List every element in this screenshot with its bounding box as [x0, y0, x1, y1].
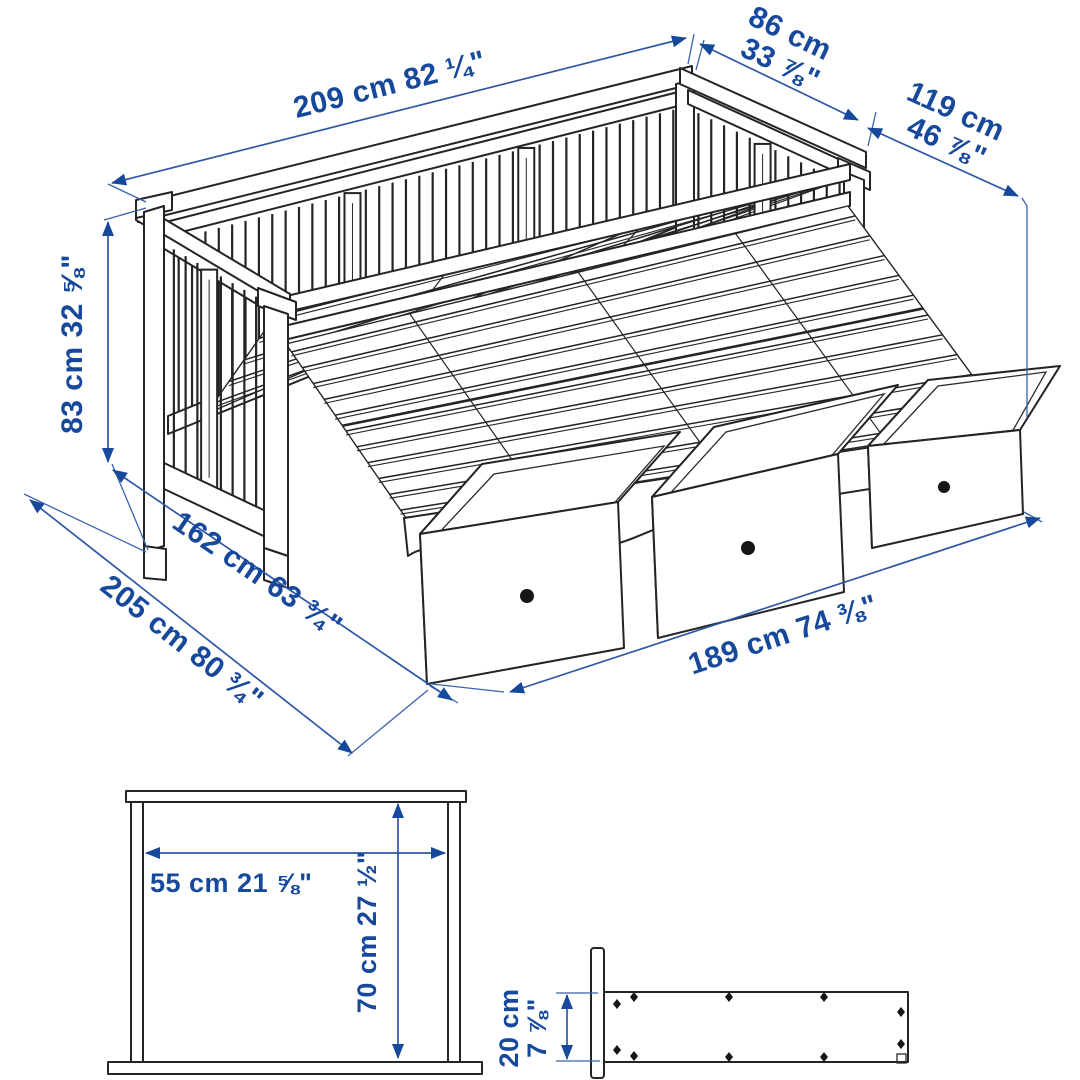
extension-line — [112, 464, 148, 550]
measurement-diagram-page: 209 cm 82 ¼" 86 cm 33 ⅞" 119 cm 46 ⅞" 83… — [0, 0, 1080, 1080]
frame-left-post — [131, 802, 143, 1062]
dim-bed-length: 209 cm 82 ¼" — [112, 38, 686, 183]
drawer-front-panel — [591, 948, 604, 1078]
daybed-diagram-svg: 209 cm 82 ¼" 86 cm 33 ⅞" 119 cm 46 ⅞" 83… — [0, 0, 1080, 1080]
dim-inner-height-label: 70 cm 27 ½" — [352, 851, 382, 1013]
back-left-foot — [144, 546, 166, 580]
drawer-3-knob — [938, 481, 950, 493]
frame-base-bar — [108, 1062, 482, 1074]
right-arm-rail-cap — [680, 68, 866, 168]
dim-total-depth-label: 205 cm 80 ¾" — [94, 569, 269, 717]
frame-right-post — [448, 802, 460, 1062]
extension-line — [348, 690, 428, 756]
dim-drawer-height-label-2: 7 ⅞" — [522, 998, 552, 1058]
drawer-body — [604, 992, 908, 1062]
dim-drawer-height: 20 cm 7 ⅞" — [494, 988, 600, 1067]
drawer-side-diagram: 20 cm 7 ⅞" — [494, 948, 908, 1078]
svg-text:86 cm 33 ⅞": 86 cm 33 ⅞" — [730, 0, 845, 100]
drawer-1-knob — [520, 589, 534, 603]
dim-inner-height: 70 cm 27 ½" — [352, 804, 398, 1058]
drawer-2-knob — [741, 541, 755, 555]
dim-height: 83 cm 32 ⅝" — [56, 222, 108, 462]
svg-text:119 cm 46 ⅞": 119 cm 46 ⅞" — [889, 75, 1018, 180]
daybed-drawing: 209 cm 82 ¼" 86 cm 33 ⅞" 119 cm 46 ⅞" 83… — [24, 0, 1060, 756]
frame-top-bar — [126, 791, 466, 802]
dim-extended-depth: 119 cm 46 ⅞" — [868, 75, 1018, 196]
dim-inner-width-label: 55 cm 21 ⅝" — [150, 868, 312, 898]
extension-line — [108, 184, 146, 202]
front-left-post — [264, 306, 288, 556]
extension-line — [688, 34, 694, 64]
dim-height-label: 83 cm 32 ⅝" — [56, 254, 89, 434]
back-left-post — [144, 206, 164, 552]
clearance-diagram: 55 cm 21 ⅝" 70 cm 27 ½" — [108, 791, 482, 1074]
dim-drawer-height-label-1: 20 cm — [494, 988, 524, 1067]
dim-inner-width: 55 cm 21 ⅝" — [146, 853, 445, 898]
extension-line — [432, 684, 504, 692]
